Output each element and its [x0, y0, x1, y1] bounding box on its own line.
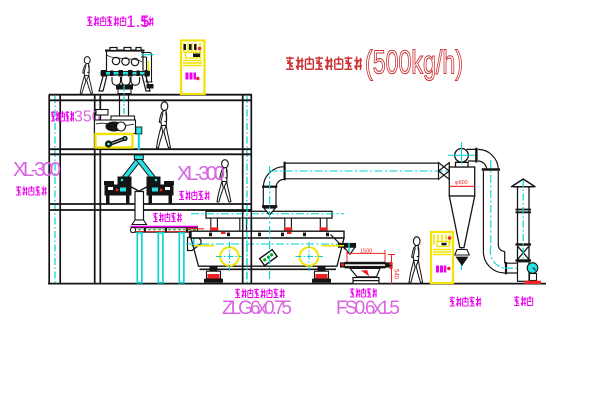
svg-text:540: 540 — [393, 269, 399, 280]
svg-text:XL-300: XL-300 — [13, 159, 61, 181]
svg-text:XL-300: XL-300 — [177, 163, 225, 185]
svg-text:(500kg/h): (500kg/h) — [365, 44, 463, 81]
svg-text:φ600: φ600 — [455, 180, 468, 186]
svg-text:FS0.6x1.5: FS0.6x1.5 — [336, 298, 400, 319]
svg-text:1500: 1500 — [360, 249, 372, 255]
svg-text:ZLG6x0.75: ZLG6x0.75 — [222, 298, 292, 319]
